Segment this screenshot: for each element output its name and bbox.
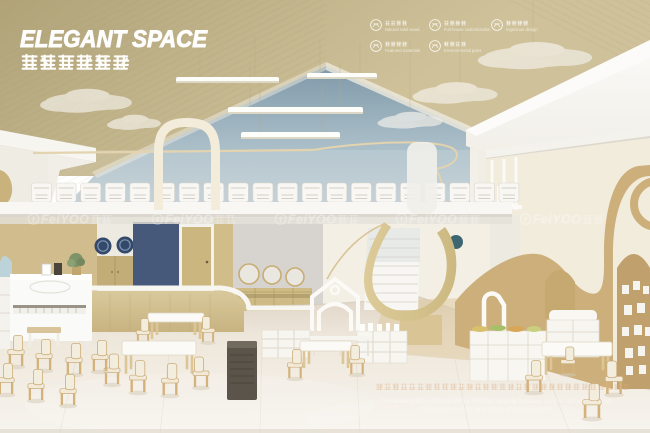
svg-text:FeiYOO: FeiYOO — [41, 212, 89, 226]
svg-text:f: f — [156, 215, 159, 224]
svg-text:Environmental paint: Environmental paint — [444, 48, 482, 53]
svg-text:f: f — [400, 215, 403, 224]
svg-text:Full-house customization: Full-house customization — [444, 27, 491, 32]
svg-text:f: f — [32, 215, 35, 224]
svg-text:f: f — [524, 215, 527, 224]
svg-text:the pattern is clear and made: the pattern is clear and made of natural… — [420, 406, 551, 413]
svg-text:FeiYOO: FeiYOO — [288, 212, 336, 226]
svg-text:Ingenious design: Ingenious design — [506, 27, 538, 32]
svg-text:Featured materials: Featured materials — [385, 48, 420, 53]
svg-text:Natural solid wood: Natural solid wood — [385, 27, 420, 32]
svg-text:ELEGANT SPACE: ELEGANT SPACE — [20, 26, 208, 53]
svg-text:FeiYOO: FeiYOO — [409, 212, 457, 226]
svg-text:FeiYOO: FeiYOO — [533, 212, 581, 226]
svg-text:The kindergarten classroom for: The kindergarten classroom for children … — [380, 398, 613, 405]
svg-text:FeiYOO: FeiYOO — [165, 212, 213, 226]
svg-text:f: f — [279, 215, 282, 224]
